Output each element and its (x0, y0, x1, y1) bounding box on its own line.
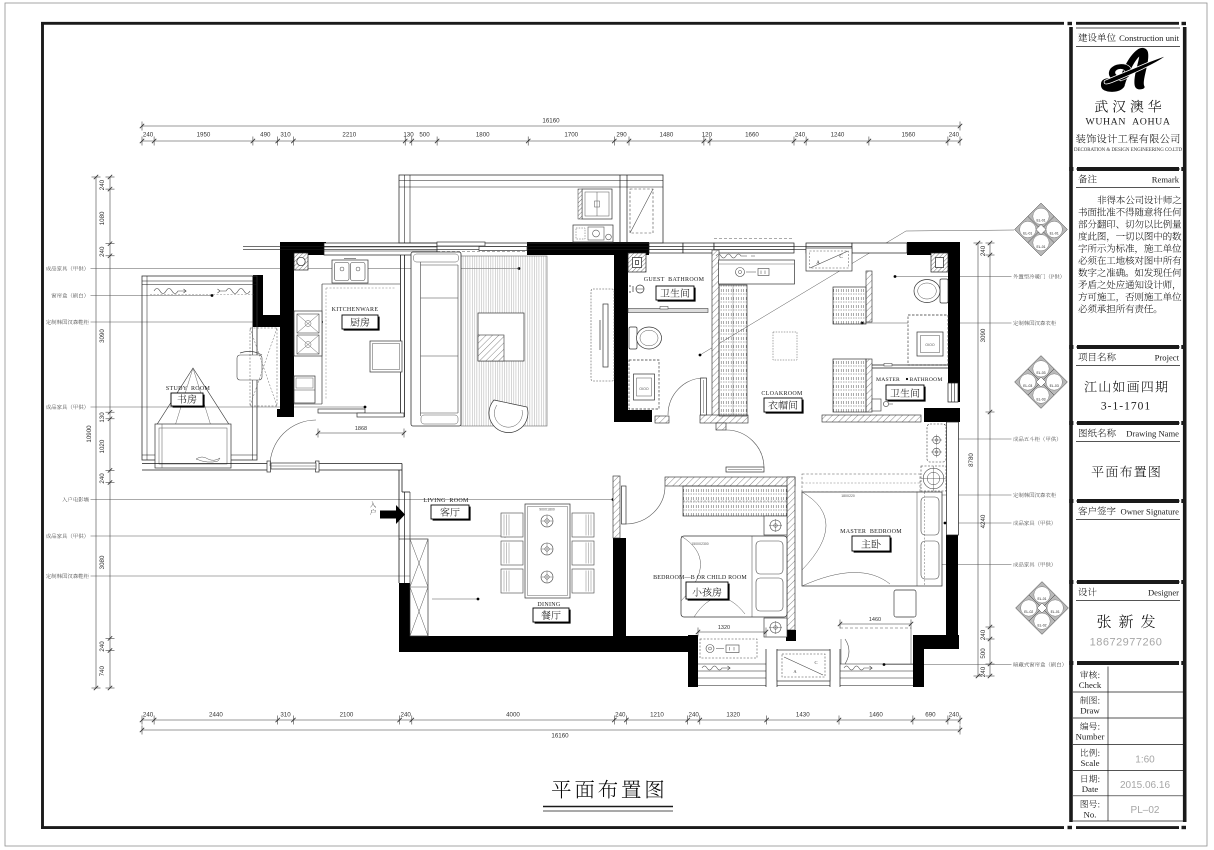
svg-text:240: 240 (143, 712, 154, 719)
svg-text:1560: 1560 (902, 132, 916, 139)
svg-text:C: C (814, 660, 817, 665)
svg-text:STUDY ROOM: STUDY ROOM (166, 386, 211, 392)
svg-text:GUEST BATHROOM: GUEST BATHROOM (644, 277, 705, 283)
svg-text:MASTER: MASTER (876, 377, 900, 383)
svg-text:EL-01: EL-01 (1051, 610, 1060, 614)
svg-text:490: 490 (260, 132, 271, 139)
svg-text:EL-01: EL-01 (1036, 219, 1045, 223)
svg-text:EL-03: EL-03 (1036, 371, 1045, 375)
svg-text:No.: No. (1084, 809, 1097, 819)
svg-text:WUHAN AOHUA: WUHAN AOHUA (1085, 117, 1170, 128)
svg-text:CLOAKROOM: CLOAKROOM (761, 391, 803, 397)
svg-text:240: 240 (615, 712, 626, 719)
svg-text:240: 240 (980, 245, 987, 256)
svg-text:Draw: Draw (1080, 706, 1100, 716)
svg-text:16160: 16160 (542, 118, 560, 125)
svg-text:1950: 1950 (197, 132, 211, 139)
svg-text:3080: 3080 (99, 555, 106, 569)
svg-text:3090: 3090 (980, 328, 987, 342)
svg-text:240: 240 (99, 246, 106, 257)
svg-text:1500X2300: 1500X2300 (691, 542, 708, 546)
svg-text:BATHROOM: BATHROOM (910, 377, 943, 383)
svg-text:1430: 1430 (796, 712, 810, 719)
svg-text:1480: 1480 (660, 132, 674, 139)
svg-text:240: 240 (99, 641, 106, 652)
svg-text:500: 500 (980, 648, 987, 659)
svg-text:Owner Signature: Owner Signature (1121, 507, 1180, 517)
svg-text:2440: 2440 (209, 712, 223, 719)
svg-text:2100: 2100 (340, 712, 354, 719)
svg-text:1240: 1240 (831, 132, 845, 139)
svg-text:Scale: Scale (1080, 758, 1099, 768)
svg-text:1020: 1020 (99, 439, 106, 453)
svg-text:240: 240 (99, 473, 106, 484)
svg-text:240: 240 (689, 712, 700, 719)
svg-text:900X1800: 900X1800 (539, 508, 555, 512)
svg-text:EL-01: EL-01 (1023, 232, 1032, 236)
svg-text:Project: Project (1155, 353, 1180, 363)
svg-text:3090: 3090 (99, 329, 106, 343)
svg-text:310: 310 (280, 712, 291, 719)
svg-text:240: 240 (401, 712, 412, 719)
svg-text:290: 290 (616, 132, 627, 139)
svg-text:DECORATION & DESIGN ENGINEERIN: DECORATION & DESIGN ENGINEERING CO.LTD (1074, 148, 1183, 153)
svg-text:1460: 1460 (869, 712, 883, 719)
svg-text:18672977260: 18672977260 (1090, 637, 1163, 649)
svg-text:KITCHENWARE: KITCHENWARE (332, 307, 379, 313)
svg-text:EL-01: EL-01 (1050, 232, 1059, 236)
svg-text:4240: 4240 (980, 514, 987, 528)
svg-text:690: 690 (925, 712, 936, 719)
svg-text:240: 240 (99, 179, 106, 190)
svg-text:EL-03: EL-03 (1050, 384, 1059, 388)
svg-text:EL-03: EL-03 (1036, 397, 1045, 401)
svg-text:LIVING ROOM: LIVING ROOM (423, 498, 469, 504)
svg-text:240: 240 (980, 666, 987, 677)
svg-text:310: 310 (280, 132, 291, 139)
svg-text:1800: 1800 (476, 132, 490, 139)
svg-text:Check: Check (1079, 680, 1102, 690)
svg-text:240: 240 (980, 629, 987, 640)
svg-text:Number: Number (1076, 732, 1105, 742)
svg-text:1700: 1700 (564, 132, 578, 139)
svg-text:Construction unit: Construction unit (1119, 33, 1180, 43)
svg-text:EL-01: EL-01 (1037, 597, 1046, 601)
svg-text:8780: 8780 (968, 453, 975, 467)
svg-text:2210: 2210 (342, 132, 356, 139)
svg-text:A: A (816, 261, 820, 266)
svg-text:Drawing Name: Drawing Name (1126, 429, 1179, 439)
svg-text:240: 240 (143, 132, 154, 139)
svg-text:16160: 16160 (551, 733, 569, 740)
svg-text:EL-01: EL-01 (1036, 245, 1045, 249)
svg-text:130: 130 (99, 412, 106, 423)
svg-text:500: 500 (419, 132, 430, 139)
svg-text:1868: 1868 (355, 426, 367, 432)
svg-text:1210: 1210 (650, 712, 664, 719)
svg-text:1660: 1660 (745, 132, 759, 139)
svg-text:EL-03: EL-03 (1023, 384, 1032, 388)
svg-text:Remark: Remark (1152, 175, 1180, 185)
svg-text:EL-02: EL-02 (1024, 610, 1033, 614)
svg-text:3-1-1701: 3-1-1701 (1101, 401, 1151, 413)
svg-text:OIOO: OIOO (925, 343, 935, 347)
svg-text:120: 120 (702, 132, 713, 139)
svg-text:1460: 1460 (869, 617, 881, 623)
svg-text:130: 130 (403, 132, 414, 139)
svg-text:EL-02: EL-02 (1037, 623, 1046, 627)
svg-text:DINING: DINING (537, 602, 560, 608)
svg-text:1:60: 1:60 (1135, 755, 1155, 766)
svg-text:1320: 1320 (718, 625, 730, 631)
svg-text:1320: 1320 (726, 712, 740, 719)
svg-text:Designer: Designer (1148, 588, 1179, 598)
svg-text:240: 240 (949, 712, 960, 719)
svg-text:740: 740 (99, 666, 106, 677)
svg-text:10900: 10900 (86, 425, 93, 443)
svg-text:Date: Date (1082, 784, 1099, 794)
svg-text:2015.06.16: 2015.06.16 (1120, 780, 1170, 791)
svg-text:MASTER BEDROOM: MASTER BEDROOM (840, 529, 902, 535)
svg-text:OIOO: OIOO (639, 387, 649, 391)
svg-text:PL–02: PL–02 (1131, 805, 1160, 816)
svg-text:240: 240 (949, 132, 960, 139)
svg-text:1080: 1080 (99, 211, 106, 225)
svg-text:4000: 4000 (506, 712, 520, 719)
svg-text:180X220: 180X220 (841, 494, 855, 498)
svg-text:240: 240 (795, 132, 806, 139)
svg-text:BEDROOM—B OR CHILD ROOM: BEDROOM—B OR CHILD ROOM (653, 575, 747, 581)
